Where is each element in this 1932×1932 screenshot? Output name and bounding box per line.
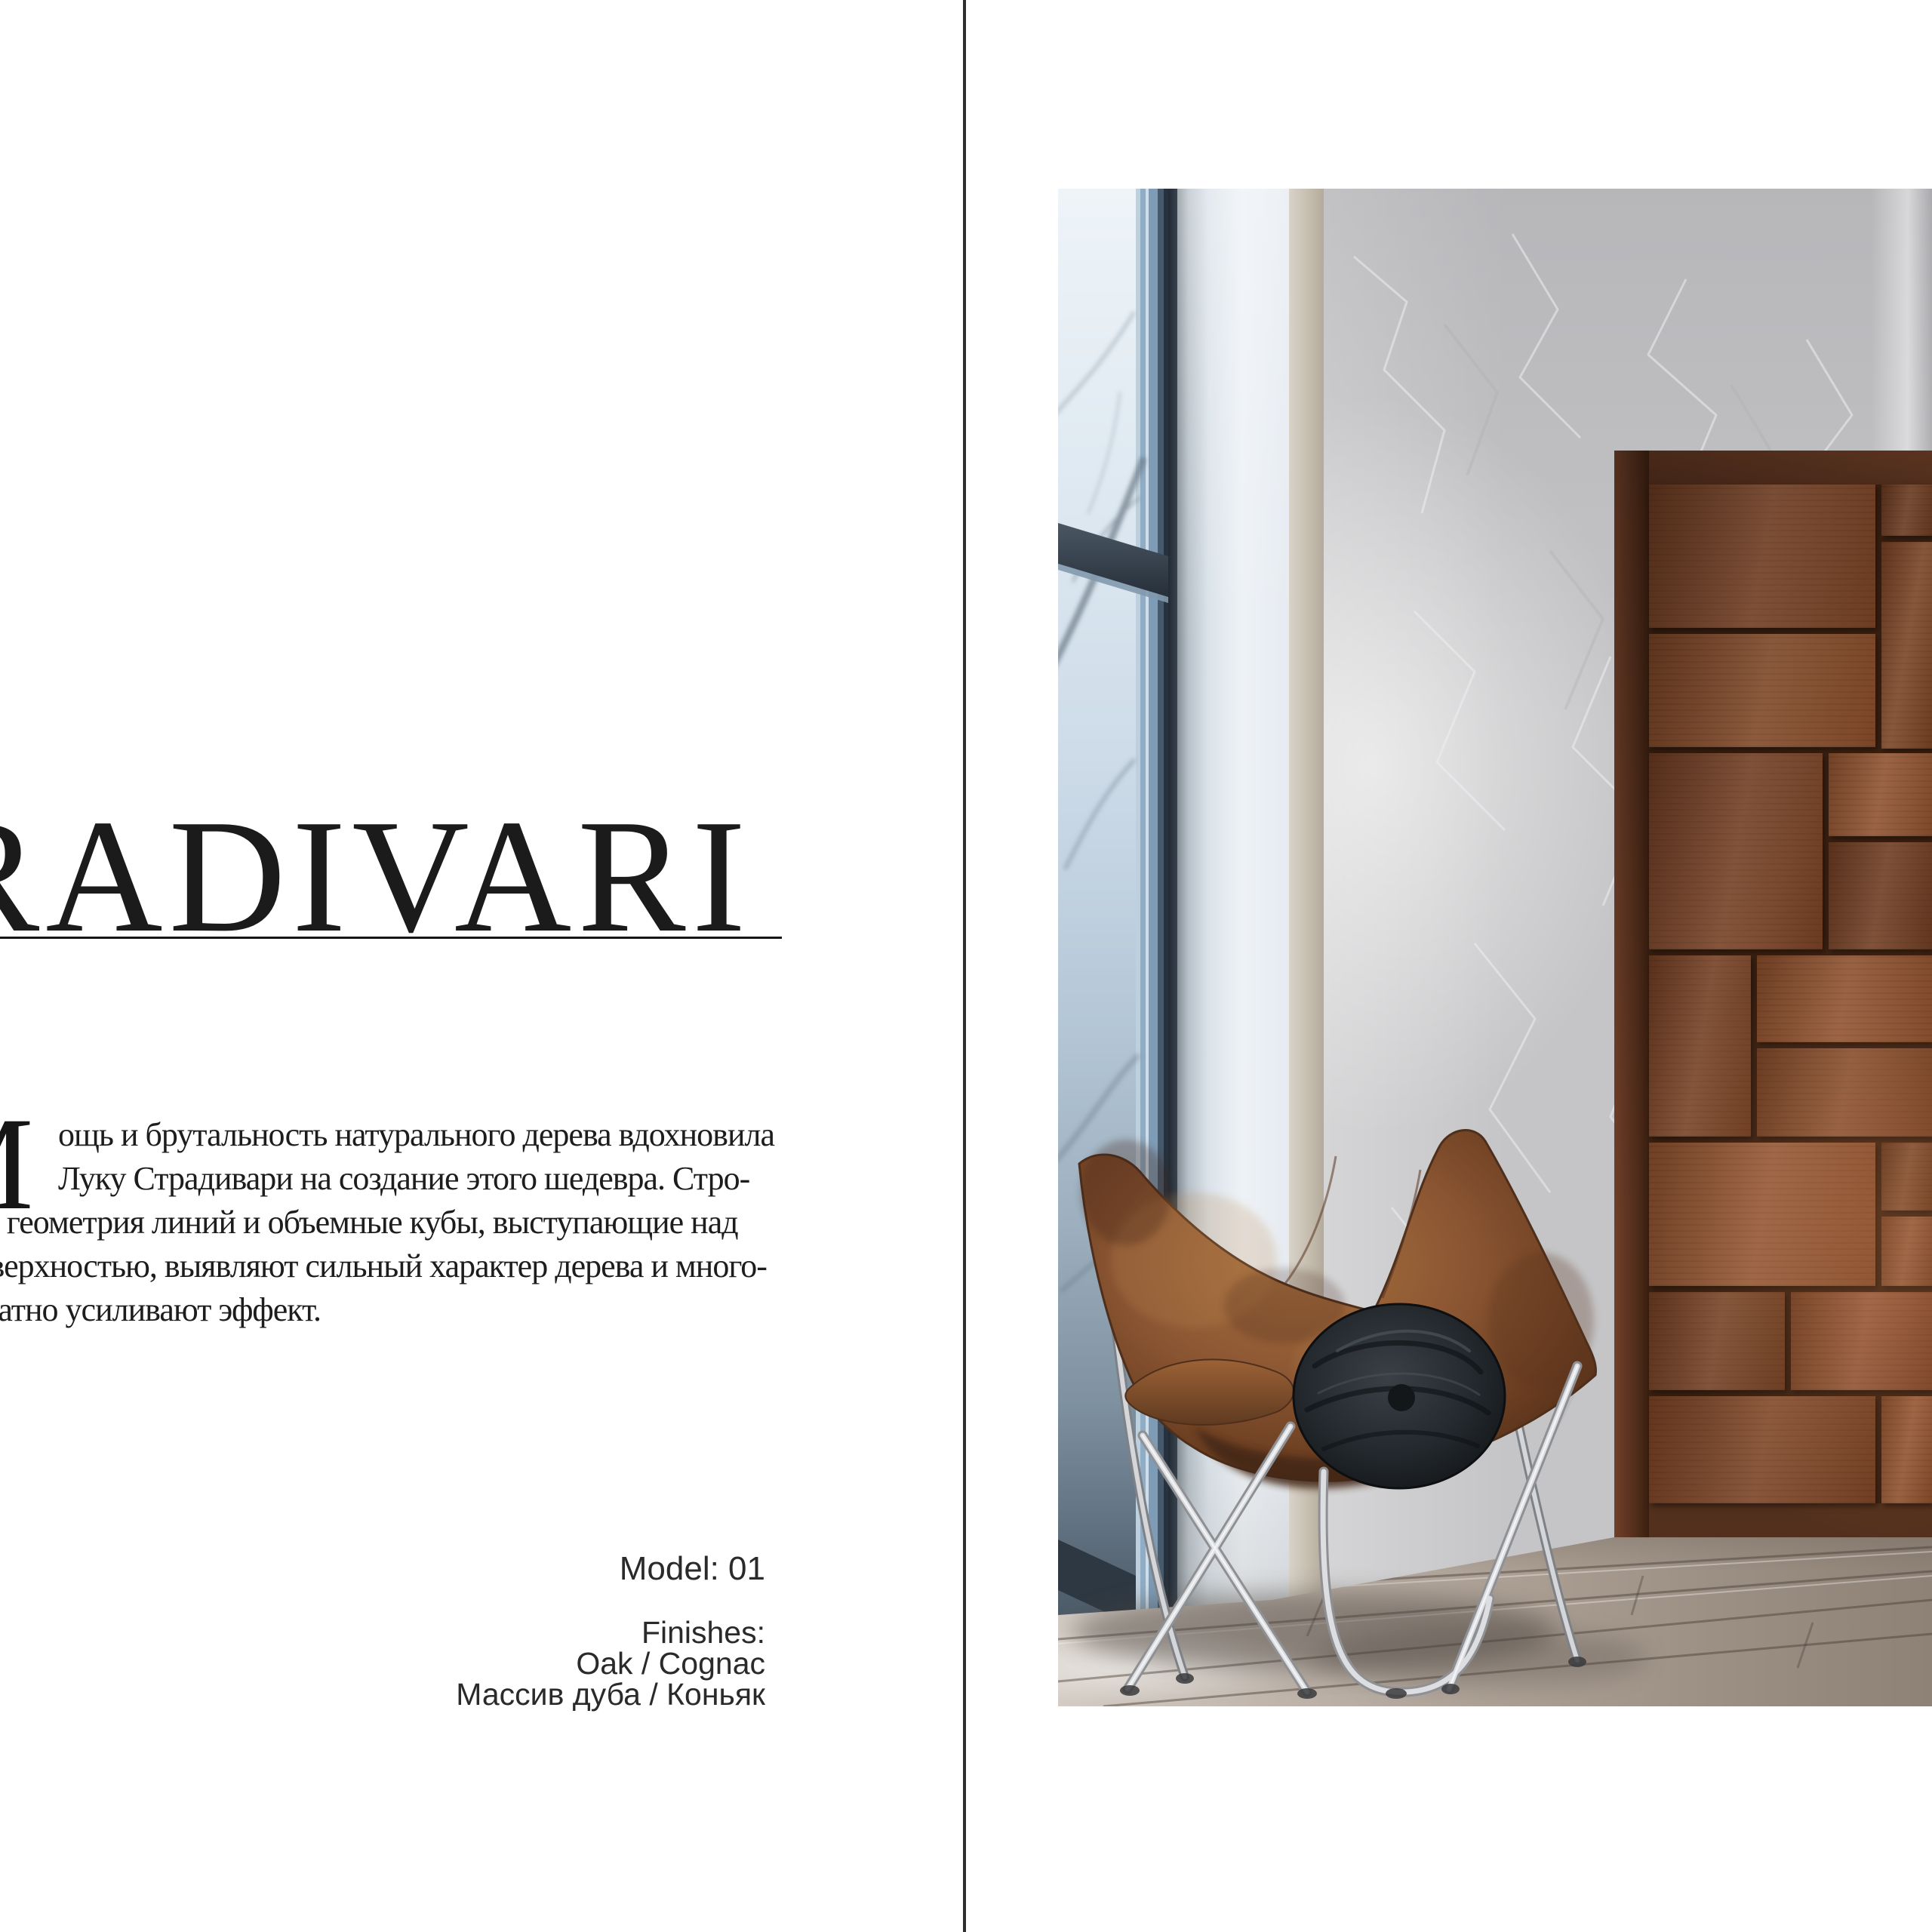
paragraph-line: гая геометрия линий и объемные кубы, выс… (0, 1206, 738, 1239)
title-underline (0, 937, 782, 939)
paragraph-line: ощь и брутальность натурального дерева в… (58, 1118, 774, 1152)
page-title: STRADIVARI (0, 795, 752, 957)
paragraph-line: поверхностью, выявляют сильный характер … (0, 1250, 767, 1283)
paragraph-line: кратно усиливают эффект. (0, 1294, 321, 1327)
finishes-label: Finishes: (0, 1617, 765, 1648)
interior-photo (1058, 189, 1932, 1706)
model-label: Model: 01 (0, 1552, 765, 1586)
divider-line (963, 0, 966, 1932)
finish-en: Oak / Cognac (0, 1647, 765, 1679)
paragraph-line: Луку Страдивари на создание этого шедевр… (58, 1162, 749, 1195)
catalog-spread: STRADIVARI М ощь и брутальность натураль… (0, 0, 1932, 1932)
butterfly-chair (1058, 189, 1932, 1706)
pillow (1294, 1304, 1505, 1488)
finish-ru: Массив дуба / Коньяк (0, 1678, 765, 1710)
